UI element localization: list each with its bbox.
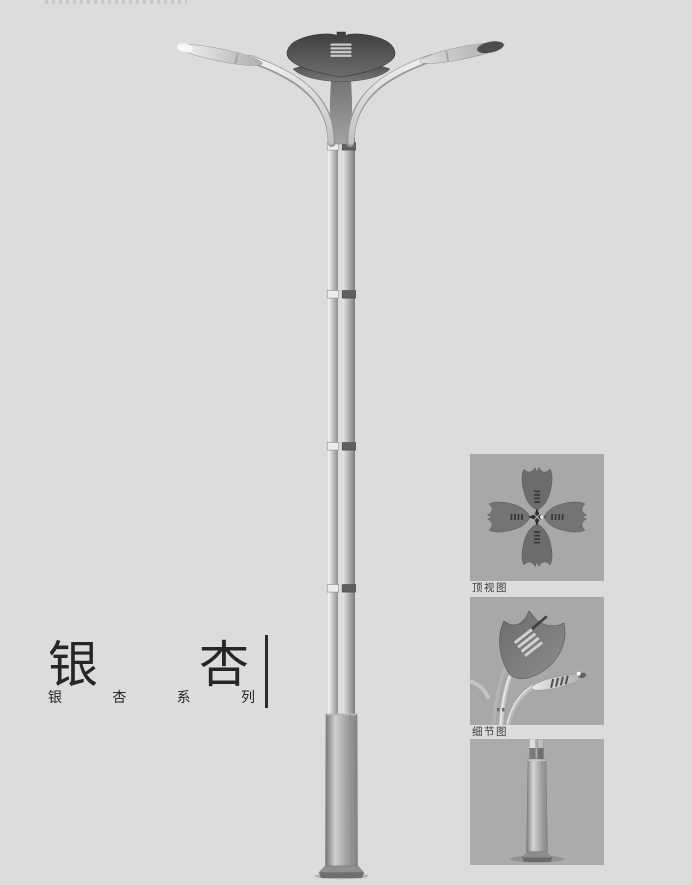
panel-caption-detail-view: 细节图 [472,726,606,740]
title-divider-line [265,635,268,708]
base-view-illustration [470,739,604,865]
square-base-sleeve [326,714,358,867]
base-plate [315,866,369,879]
detail-lamp-arm [508,686,534,724]
pole-joint [327,291,355,299]
series-char: 杏 [112,690,126,708]
panel-caption-base-view [472,867,606,881]
panel-detail-view [470,597,604,725]
product-title: 银 杏 [48,639,249,693]
base-view-sleeve [527,759,548,852]
title-char: 杏 [199,639,249,691]
ginkgo-crown [287,32,395,82]
right-arm-lamp [419,38,506,67]
detail-view-illustration [470,597,604,725]
base-view-tubes [530,739,544,760]
series-char: 列 [241,690,255,708]
series-char: 系 [177,690,191,708]
twin-tube-pole [328,138,355,714]
top-view-leaf-down [522,524,552,567]
left-arm-lamp [176,40,264,69]
detail-corner-tubes [470,681,488,705]
top-view-illustration [470,454,604,581]
series-char: 银 [48,690,62,708]
title-char: 银 [48,639,98,691]
detail-ginkgo-leaf [499,611,565,679]
panel-top-view [470,454,604,581]
base-view-plate [522,852,553,863]
panel-base-view [470,739,604,865]
product-series-title: 银 杏 系 列 [48,690,255,708]
pole-joint [327,443,355,451]
top-view-leaf-left [488,502,531,532]
top-view-highlight-dot [540,515,544,519]
pole-joint [327,585,355,593]
panel-caption-top-view: 顶视图 [472,582,606,596]
top-view-leaf-up [522,468,552,511]
top-view-leaf-right [544,502,587,532]
